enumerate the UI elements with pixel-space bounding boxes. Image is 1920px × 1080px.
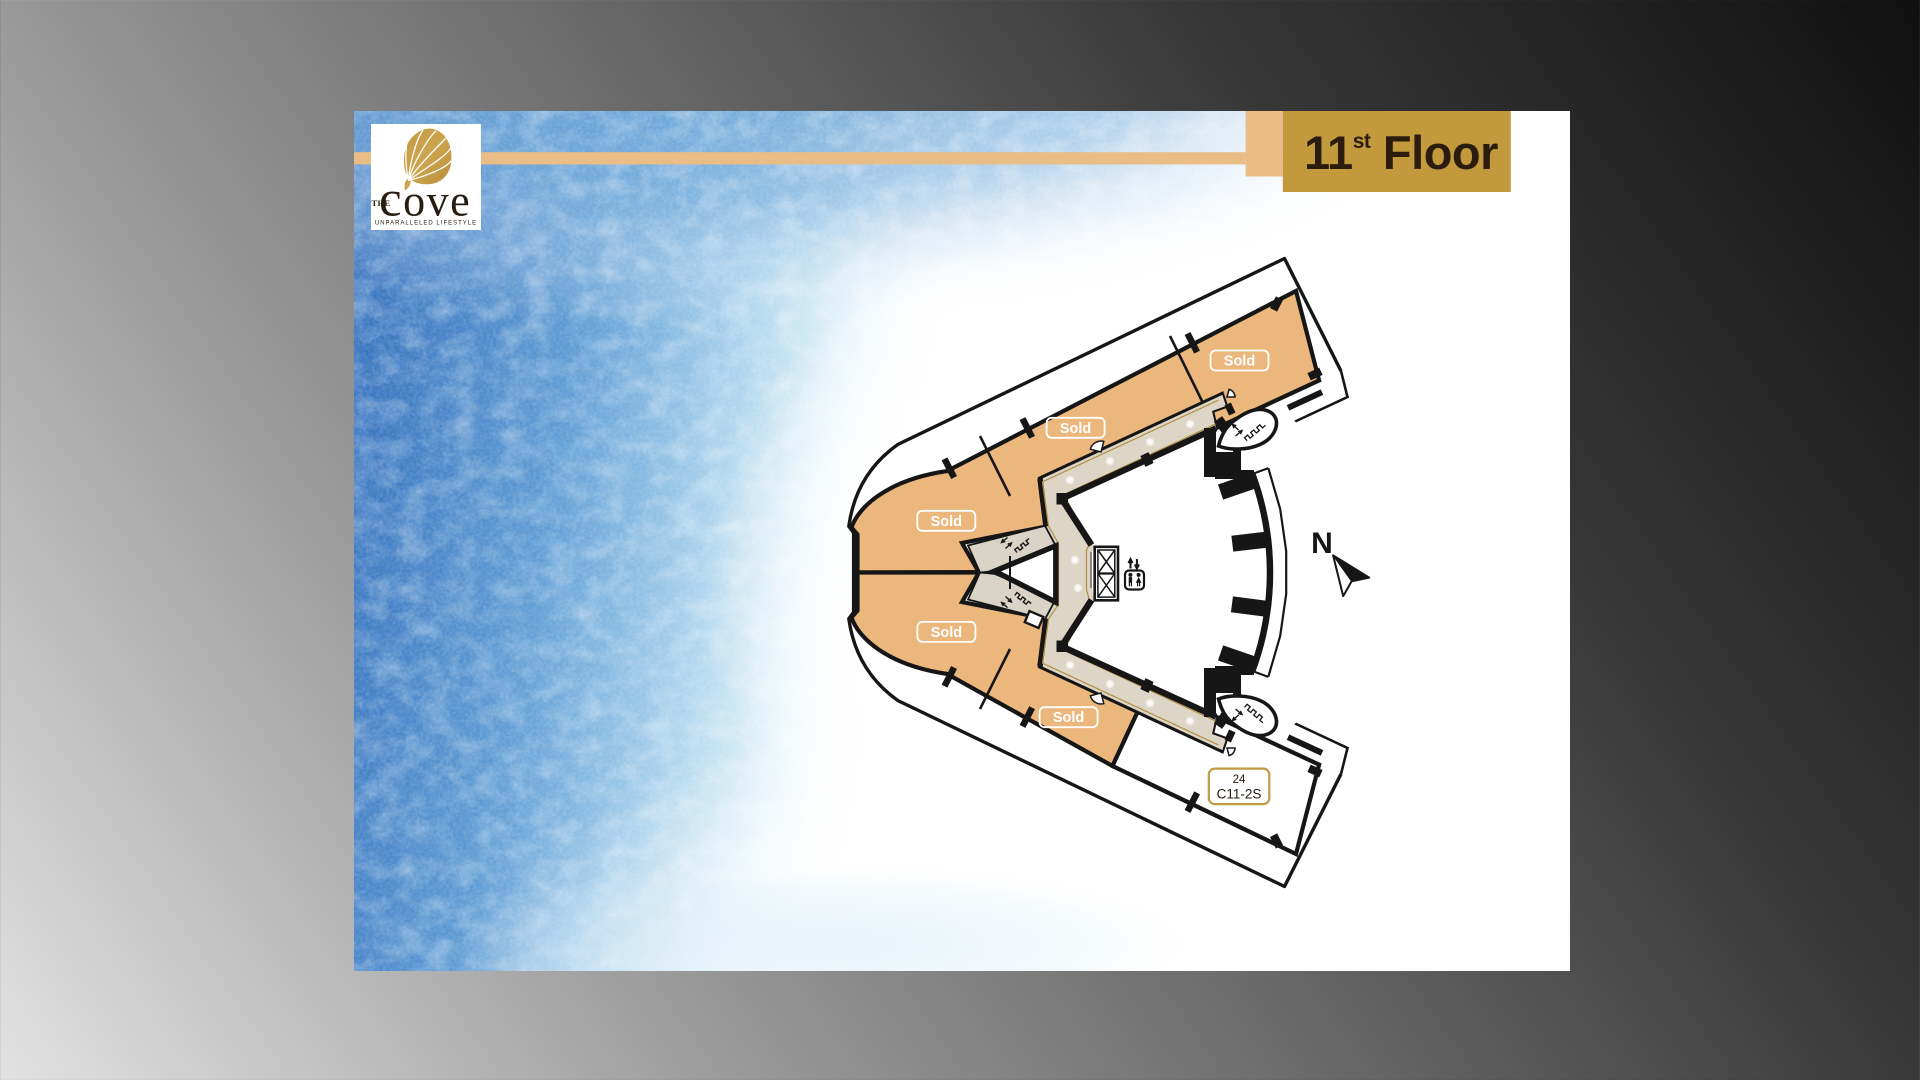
svg-text:Sold: Sold [1053, 710, 1084, 726]
svg-text:11st Floor: 11st Floor [1304, 126, 1498, 179]
svg-text:Sold: Sold [931, 514, 962, 530]
svg-text:N: N [1311, 527, 1333, 560]
svg-text:Sold: Sold [1224, 354, 1255, 370]
svg-text:Sold: Sold [1060, 421, 1091, 437]
svg-text:24: 24 [1233, 774, 1246, 786]
svg-text:cove: cove [379, 172, 471, 228]
svg-text:UNPARALLELED LIFESTYLE: UNPARALLELED LIFESTYLE [375, 221, 477, 227]
svg-text:C11-2S: C11-2S [1217, 787, 1262, 802]
svg-text:Sold: Sold [931, 625, 962, 641]
